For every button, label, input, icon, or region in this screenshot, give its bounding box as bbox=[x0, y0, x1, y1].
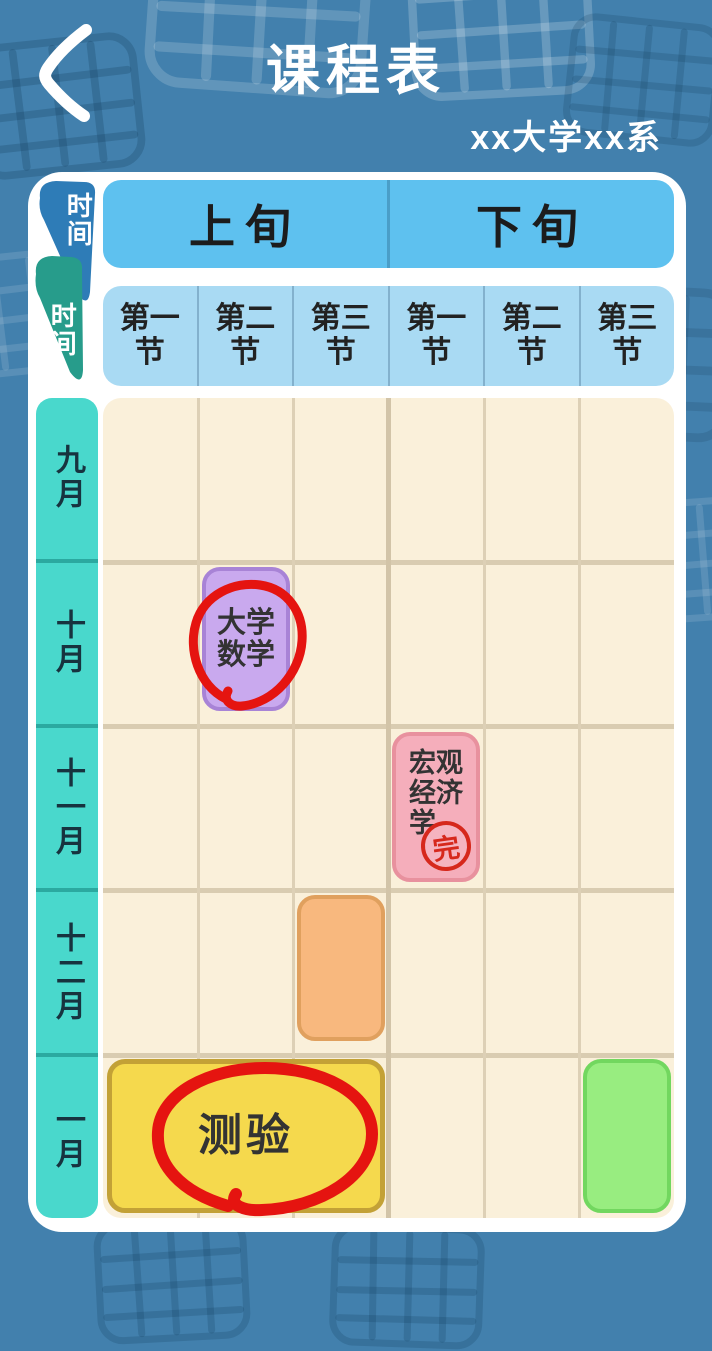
section-header: 第三节 bbox=[579, 286, 675, 386]
course-block-math[interactable]: 大学数学 bbox=[202, 567, 290, 711]
time-wedge-top-label: 时间 bbox=[64, 192, 91, 248]
page-subtitle: xx大学xx系 bbox=[470, 110, 662, 159]
schedule-grid: 大学数学 宏观经济学 完 测验 bbox=[103, 398, 674, 1218]
section-header: 第二节 bbox=[483, 286, 579, 386]
section-header: 第一节 bbox=[388, 286, 484, 386]
time-wedge-bottom-label: 时间 bbox=[48, 302, 75, 358]
month-cell: 一月 bbox=[36, 1053, 98, 1218]
table-doodle-icon bbox=[92, 1214, 252, 1346]
month-cell: 十月 bbox=[36, 559, 98, 724]
course-block-quiz[interactable]: 测验 bbox=[107, 1059, 385, 1213]
month-cell: 十一月 bbox=[36, 724, 98, 889]
grid-line bbox=[386, 398, 391, 1218]
course-block-empty-orange[interactable] bbox=[297, 895, 385, 1041]
grid-line bbox=[483, 398, 486, 1218]
page-title: 课程表 bbox=[0, 26, 712, 105]
section-header: 第二节 bbox=[197, 286, 293, 386]
section-header-row: 第一节 第二节 第三节 第一节 第二节 第三节 bbox=[103, 286, 674, 386]
month-cell: 九月 bbox=[36, 398, 98, 559]
section-header: 第一节 bbox=[103, 286, 197, 386]
course-title: 大学数学 bbox=[217, 607, 275, 672]
schedule-panel: 时间 时间 上旬 下旬 第一节 第二节 第三节 第一节 第二节 第三节 九月 十… bbox=[28, 172, 686, 1232]
month-column: 九月 十月 十一月 十二月 一月 bbox=[36, 398, 98, 1218]
period-header-row: 上旬 下旬 bbox=[103, 180, 674, 268]
period-header-second: 下旬 bbox=[387, 180, 674, 268]
period-header-first: 上旬 bbox=[103, 180, 387, 268]
course-block-empty-green[interactable] bbox=[583, 1059, 671, 1213]
section-header: 第三节 bbox=[292, 286, 388, 386]
month-cell: 十二月 bbox=[36, 888, 98, 1053]
table-doodle-icon bbox=[328, 1221, 486, 1350]
course-title: 测验 bbox=[198, 1111, 294, 1160]
grid-line bbox=[578, 398, 581, 1218]
course-block-macroeconomics[interactable]: 宏观经济学 完 bbox=[392, 732, 480, 882]
